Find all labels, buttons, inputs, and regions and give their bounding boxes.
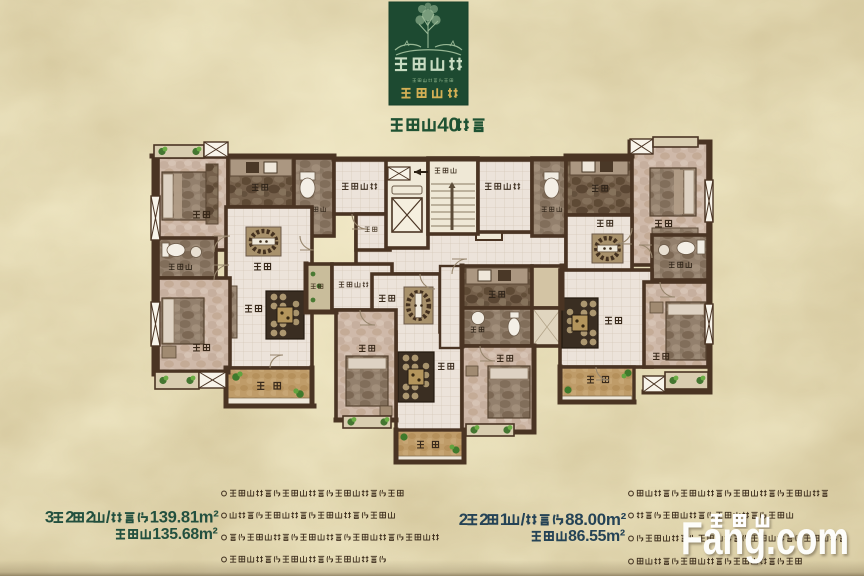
svg-text:40: 40 (437, 114, 459, 137)
svg-text:2: 2 (65, 508, 74, 527)
svg-text:2: 2 (479, 510, 488, 529)
svg-text:1: 1 (500, 510, 509, 529)
svg-text:/: / (521, 510, 526, 529)
svg-text:86.55m²: 86.55m² (568, 528, 625, 545)
svg-text:/: / (106, 508, 111, 527)
svg-text:2: 2 (86, 508, 95, 527)
svg-text:135.68m²: 135.68m² (152, 526, 217, 543)
svg-text:88.00m²: 88.00m² (565, 510, 626, 529)
svg-text:Fang.com: Fang.com (681, 512, 849, 564)
svg-text:139.81m²: 139.81m² (150, 508, 219, 527)
svg-text:2: 2 (459, 510, 468, 529)
svg-text:3: 3 (45, 508, 54, 527)
